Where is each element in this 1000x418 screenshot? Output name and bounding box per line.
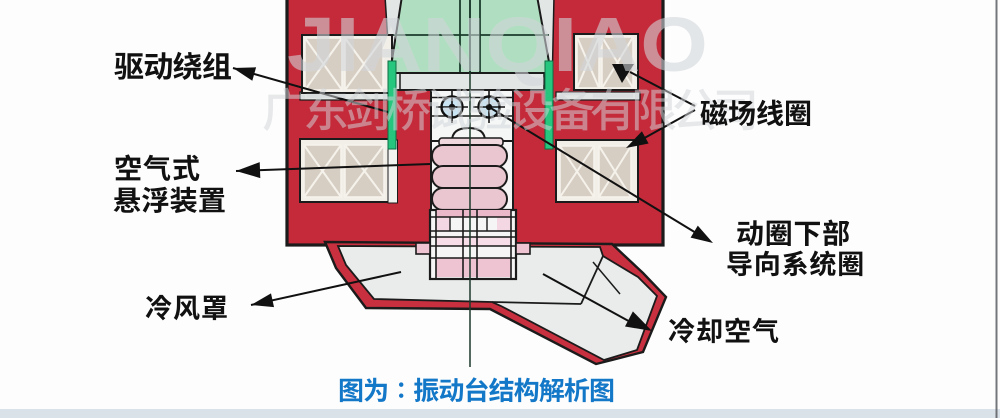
svg-text:JIANQIAO: JIANQIAO (287, 2, 708, 88)
